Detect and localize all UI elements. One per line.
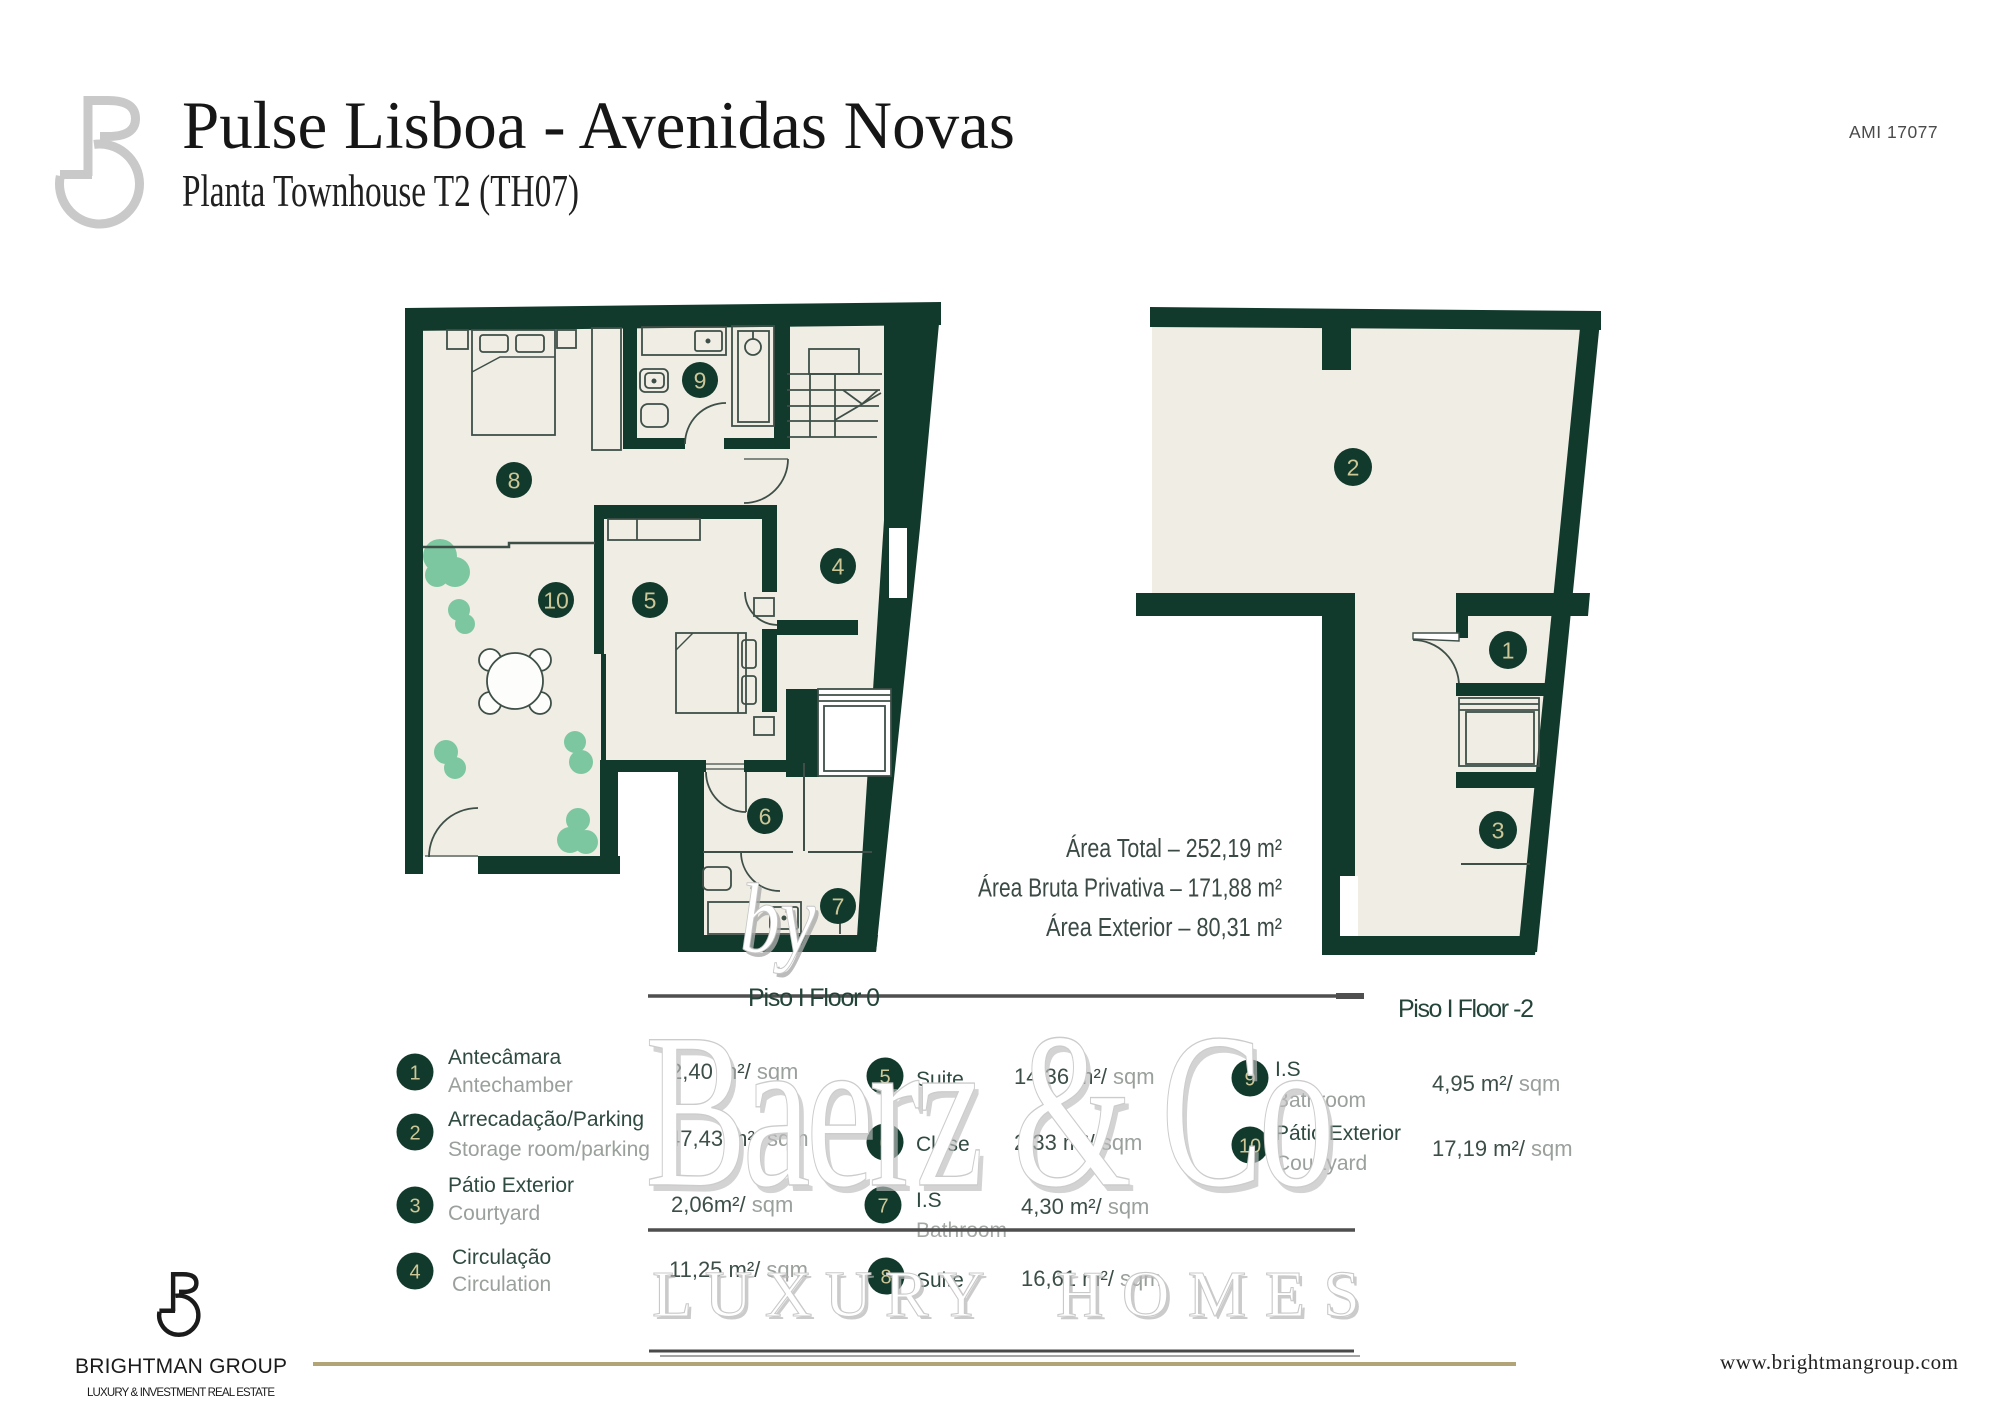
svg-text:Storage room/parking: Storage room/parking: [448, 1138, 650, 1161]
svg-text:Pátio Exterior: Pátio Exterior: [448, 1174, 574, 1197]
svg-text:5: 5: [644, 588, 657, 614]
svg-text:Planta Townhouse T2 (TH07): Planta Townhouse T2 (TH07): [182, 165, 579, 216]
svg-text:3: 3: [1492, 818, 1505, 844]
svg-text:Circulação: Circulação: [452, 1246, 551, 1269]
svg-text:www.brightmangroup.com: www.brightmangroup.com: [1720, 1350, 1958, 1374]
svg-text:Arrecadação/Parking: Arrecadação/Parking: [448, 1108, 644, 1131]
svg-text:Piso I Floor -2: Piso I Floor -2: [1398, 995, 1534, 1023]
svg-text:4: 4: [832, 554, 845, 580]
svg-text:Antecâmara: Antecâmara: [448, 1046, 562, 1069]
svg-text:AMI 17077: AMI 17077: [1849, 122, 1938, 142]
svg-text:8: 8: [508, 468, 521, 494]
svg-text:Pulse Lisboa - Avenidas Novas: Pulse Lisboa - Avenidas Novas: [182, 87, 1015, 163]
svg-text:Courtyard: Courtyard: [448, 1202, 540, 1225]
svg-text:1: 1: [409, 1063, 420, 1085]
svg-text:2: 2: [1347, 455, 1360, 481]
svg-text:LUXURY & INVESTMENT REAL ESTAT: LUXURY & INVESTMENT REAL ESTATE: [87, 1387, 275, 1399]
svg-text:Área Bruta Privativa – 171,88: Área Bruta Privativa – 171,88 m²: [978, 874, 1282, 903]
svg-text:17,19 m²/ sqm: 17,19 m²/ sqm: [1432, 1136, 1573, 1161]
svg-text:6: 6: [759, 804, 772, 830]
svg-text:by: by: [740, 863, 816, 975]
svg-text:HOMES: HOMES: [1056, 1258, 1360, 1331]
svg-text:9: 9: [694, 368, 707, 394]
svg-text:4: 4: [409, 1262, 420, 1284]
svg-text:10: 10: [543, 588, 569, 614]
svg-text:Antechamber: Antechamber: [448, 1074, 573, 1097]
svg-text:7: 7: [832, 894, 845, 920]
svg-text:4,95 m²/ sqm: 4,95 m²/ sqm: [1432, 1071, 1560, 1096]
svg-text:2: 2: [409, 1123, 420, 1145]
svg-text:1: 1: [1502, 638, 1515, 664]
svg-text:Circulation: Circulation: [452, 1273, 551, 1296]
svg-text:3: 3: [409, 1196, 420, 1218]
svg-text:BRIGHTMAN GROUP: BRIGHTMAN GROUP: [75, 1355, 287, 1378]
svg-text:Baerz & Co: Baerz & Co: [645, 988, 1335, 1234]
svg-text:Área Total – 252,19 m²: Área Total – 252,19 m²: [1066, 834, 1282, 863]
svg-text:Área Exterior – 80,31 m²: Área Exterior – 80,31 m²: [1046, 913, 1282, 942]
